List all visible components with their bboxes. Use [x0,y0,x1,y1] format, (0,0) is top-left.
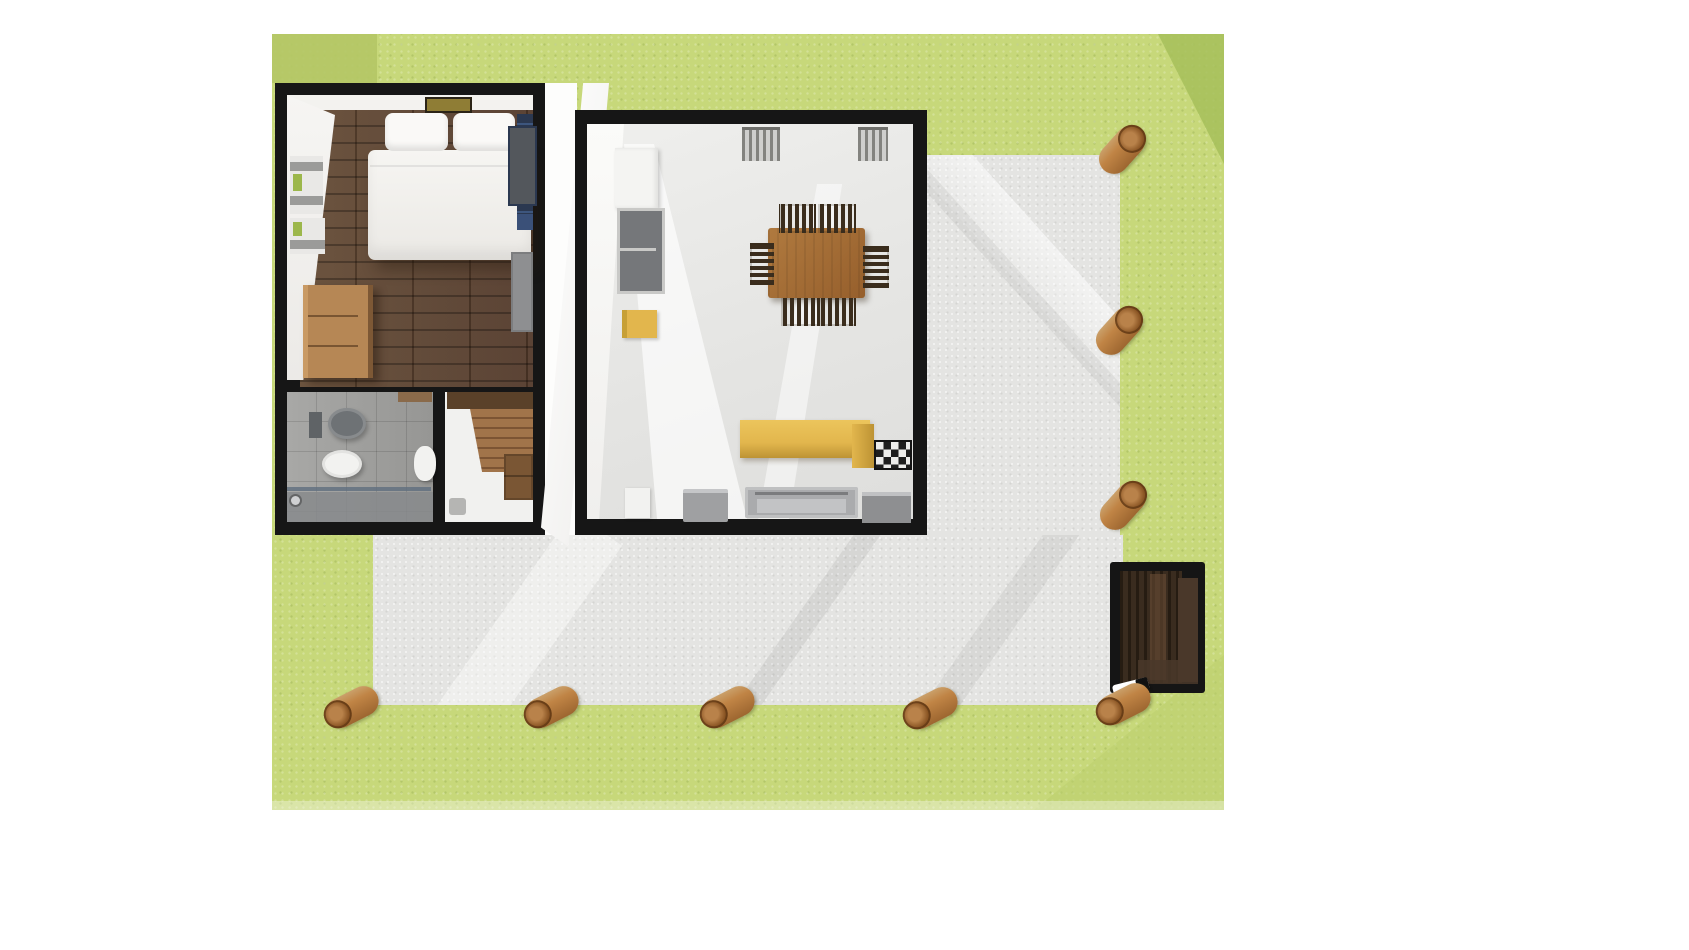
toilet-cistern [309,412,322,438]
oven-long [745,487,858,518]
fridge [615,148,658,208]
shelf-board [290,196,323,205]
dining-table [768,228,865,298]
dining-chair [750,243,774,285]
counter-right-piece [862,492,911,523]
bed-pillow-left [385,113,448,151]
landing-band [447,392,533,409]
shelf-board [290,162,323,171]
stair-room [445,392,533,522]
deck-light-streak [424,535,622,705]
bedroom [287,95,533,380]
wall-shelf-upper [290,156,323,214]
wall-shelf-lower [290,218,325,254]
kitchen-counter [740,420,870,458]
kitchen-counter-arm [852,424,874,468]
wardrobe-mat [511,252,533,332]
deck-right-strip [925,155,1120,535]
lawn-shade-topleft [272,34,377,83]
wood-store-box [1110,562,1205,693]
bunk-lower-slat [517,214,533,230]
bunk-bed-panel [508,126,537,206]
toilet [328,408,366,439]
oven-stack-seam [620,248,656,251]
oven-stack [617,208,665,294]
floorplan-render [0,0,1689,950]
deck-bottom-strip [373,535,1123,705]
bathroom [287,392,433,522]
appliance-gray [683,489,728,522]
gas-hob [874,440,912,470]
dresser-drawer-seam [308,315,358,317]
cabinet-seam [504,475,533,477]
bar-stool [622,310,657,338]
skylight-vent [425,97,472,113]
washbasin [414,446,436,481]
shower-glass [287,487,431,491]
dining-chair [818,204,856,233]
storage-cabinet [504,454,533,500]
dining-chair [781,298,819,326]
bed-pillow-right [453,113,515,151]
bidet [322,450,362,478]
shelf-books-green [293,174,302,191]
dining-chair [863,246,889,288]
dresser [303,285,373,378]
shelf-books-green [293,222,302,236]
oven-handle [755,492,848,495]
shower-head [291,496,300,505]
shelf-board [290,240,325,249]
appliance-white [625,488,650,518]
shower-area [287,492,433,522]
window-blind-left [742,127,780,161]
deck-shadow-streak [720,535,887,705]
bed-fold-line [370,165,530,167]
dresser-drawer-seam [308,345,358,347]
window-blind-right [858,127,888,161]
deck-shadow-streak [911,535,1085,705]
oven-door [757,499,846,513]
dining-chair [779,204,816,233]
lawn-bottom-highlight [272,801,1224,810]
bathroom-shelf [398,392,432,402]
dining-chair [819,298,856,326]
small-bin [449,498,466,515]
kitchen [587,124,913,519]
